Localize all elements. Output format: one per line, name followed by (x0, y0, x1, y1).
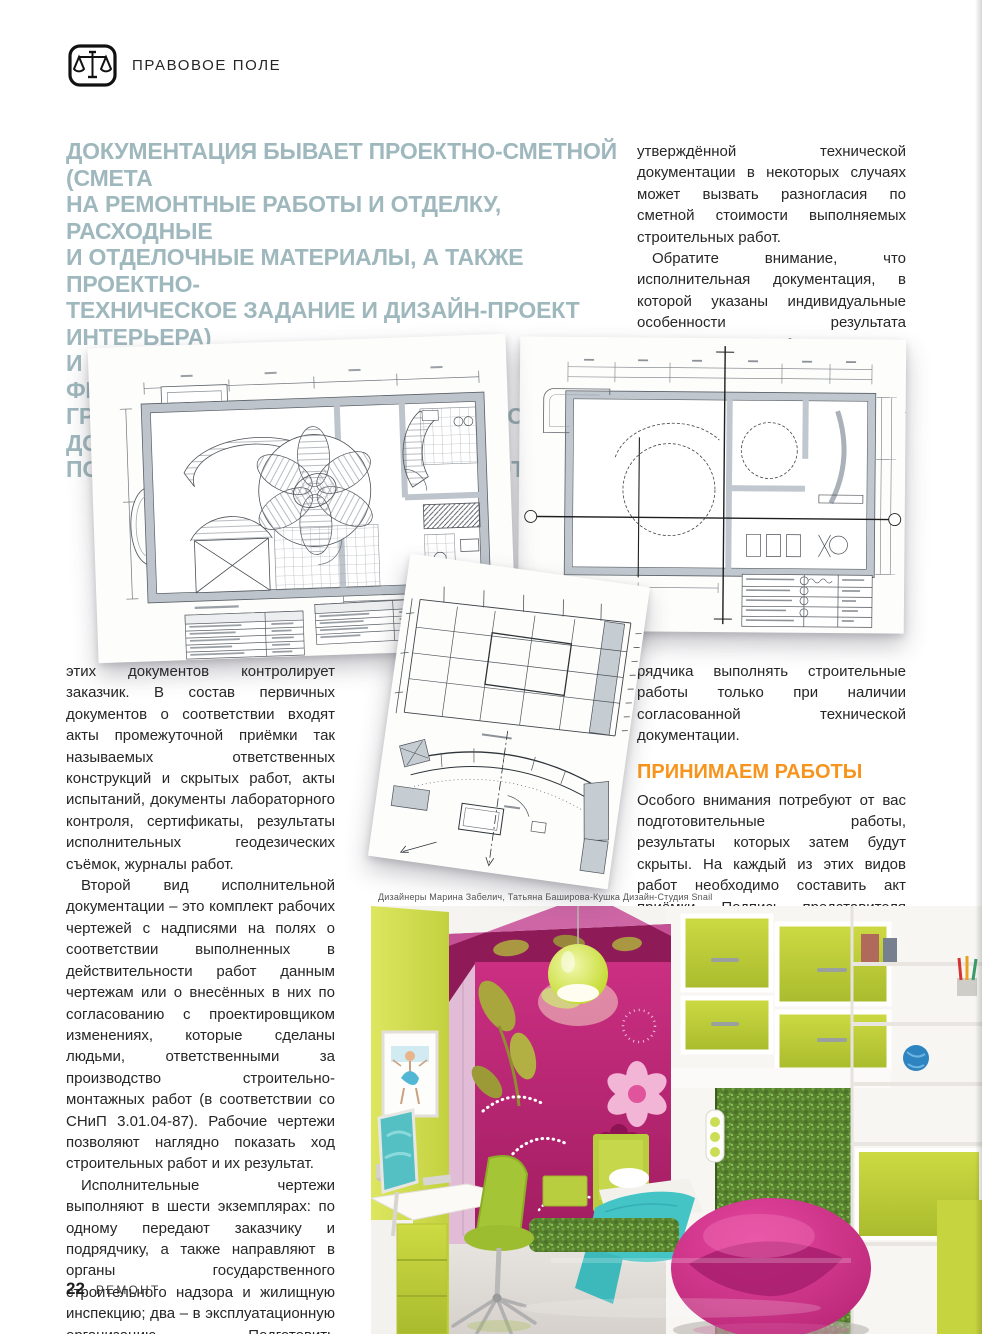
scales-icon (68, 44, 117, 87)
ceiling-detail-plan (368, 554, 650, 890)
magazine-page: ПРАВОВОЕ ПОЛЕ ДОКУМЕНТАЦИЯ БЫВАЕТ ПРОЕКТ… (0, 0, 982, 1334)
page-edge (975, 0, 982, 1334)
paragraph: рядчика выполнять строительные работы то… (637, 661, 906, 747)
section-heading: ПРИНИМАЕМ РАБОТЫ (637, 761, 906, 783)
page-number: 22 (66, 1279, 85, 1299)
paragraph: утверждённой технической документации в … (637, 141, 906, 248)
light-switch (706, 1110, 724, 1162)
section-header: ПРАВОВОЕ ПОЛЕ (68, 44, 281, 87)
column-left: этих документов контролирует заказчик. В… (66, 661, 335, 1334)
paragraph: Второй вид исполнительной документации –… (66, 875, 335, 1175)
paragraph: этих документов контролирует заказчик. В… (66, 661, 335, 875)
ballerina-picture (383, 1032, 437, 1116)
page-footer: 22 РЕМОНТ (66, 1279, 160, 1299)
paragraph: Исполнительные чертежи выполняют в шести… (66, 1175, 335, 1334)
kids-room-photo (371, 906, 982, 1334)
magazine-name: РЕМОНТ (96, 1283, 161, 1297)
section-label: ПРАВОВОЕ ПОЛЕ (132, 57, 281, 74)
photo-caption: Дизайнеры Марина Забелич, Татьяна Баширо… (378, 892, 712, 902)
green-rug (529, 1218, 679, 1252)
